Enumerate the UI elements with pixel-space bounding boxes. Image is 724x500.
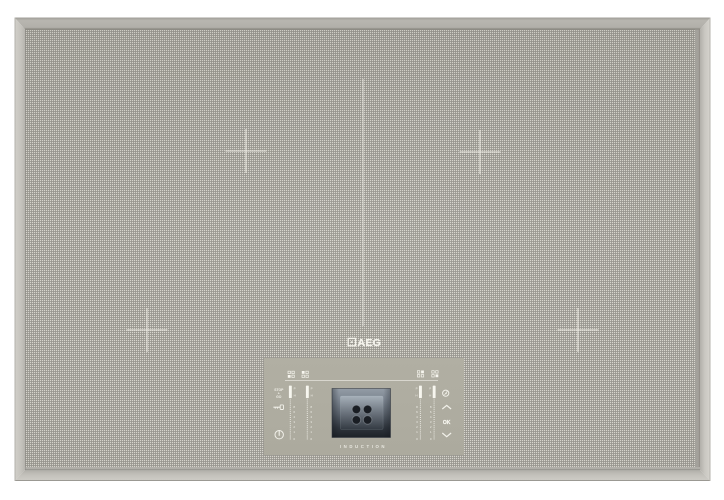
svg-text:GO: GO (276, 395, 282, 399)
svg-text:INDUCTION: INDUCTION (340, 444, 387, 449)
svg-text:AEG: AEG (358, 337, 382, 349)
svg-text:P: P (294, 387, 296, 391)
svg-text:OK: OK (443, 420, 451, 426)
svg-text:H: H (415, 394, 417, 398)
svg-text:P: P (416, 387, 418, 391)
svg-text:H: H (429, 394, 431, 398)
svg-text:H: H (294, 394, 296, 398)
svg-text:P: P (429, 387, 431, 391)
svg-text:P: P (311, 387, 313, 391)
svg-text:H: H (311, 394, 313, 398)
